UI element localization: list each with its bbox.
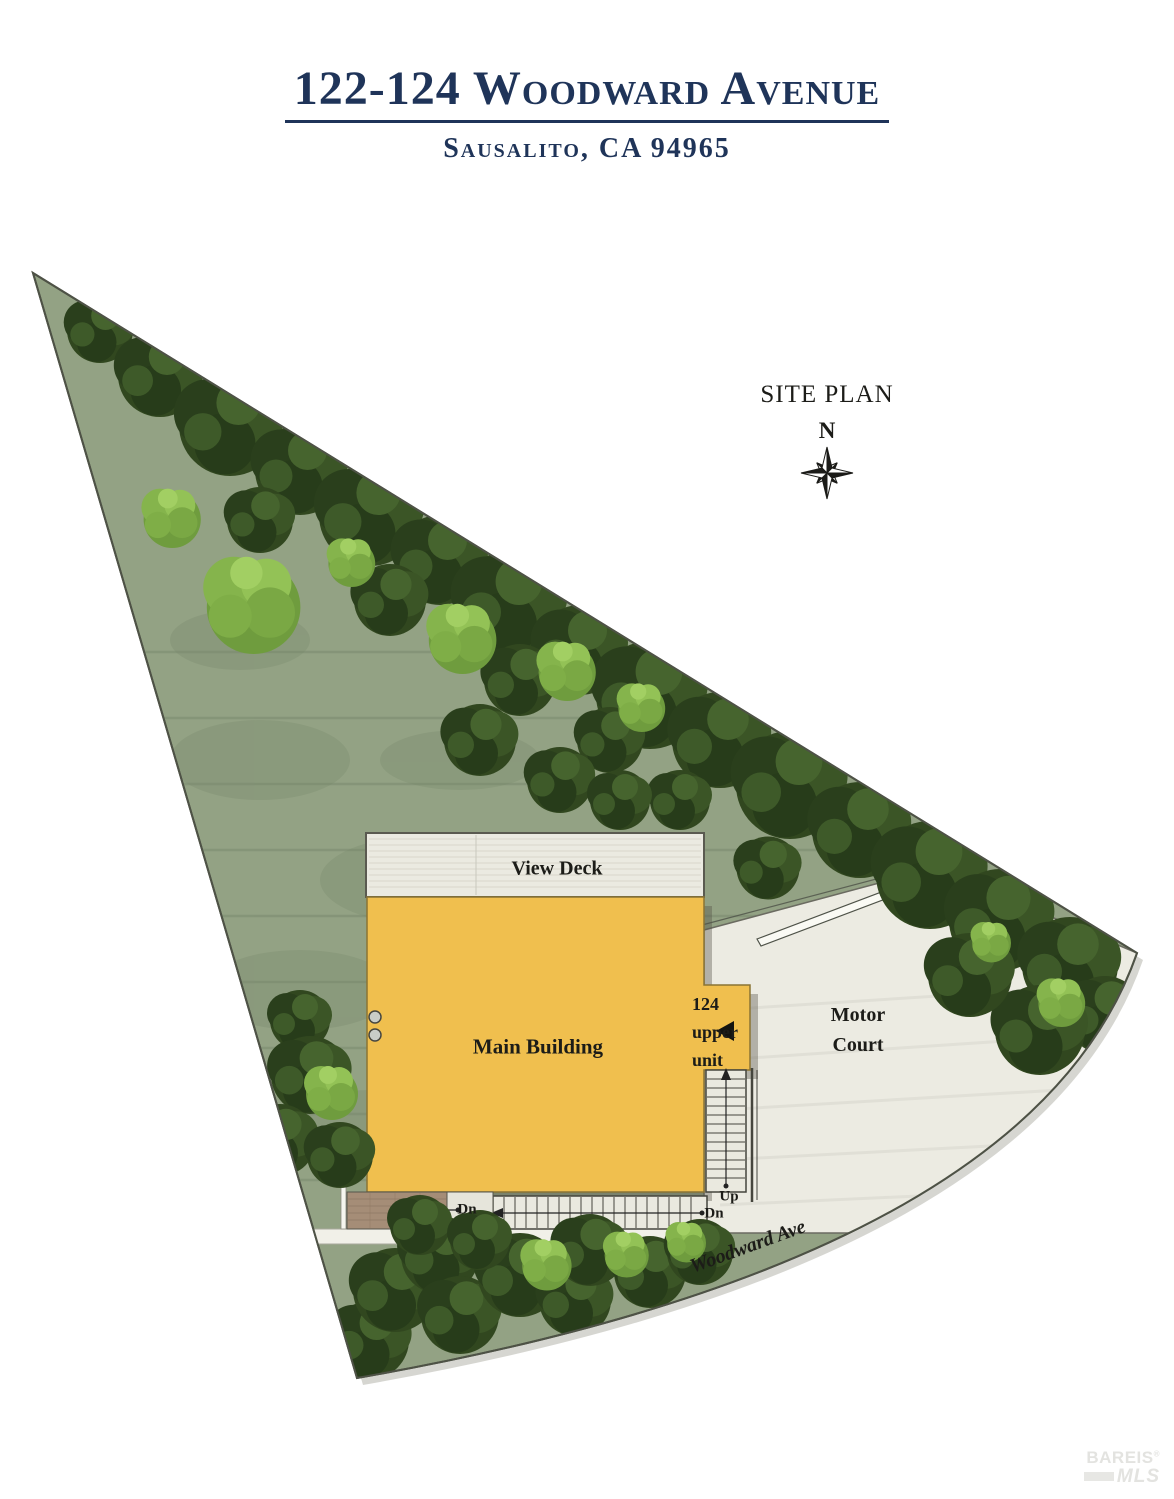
site-plan: SITE PLAN N View Deck Main Building 124 … bbox=[0, 0, 1174, 1499]
mls-watermark: BAREIS® MLS bbox=[1084, 1449, 1160, 1486]
building-column-dot bbox=[369, 1011, 381, 1023]
site-plan-drawing bbox=[0, 0, 1174, 1499]
building-column-dot bbox=[369, 1029, 381, 1041]
watermark-mls: MLS bbox=[1084, 1467, 1160, 1486]
watermark-bar bbox=[1084, 1472, 1114, 1481]
main-building-footprint bbox=[367, 897, 750, 1192]
compass-rose-icon bbox=[801, 447, 853, 499]
flyer-page: 122-124 Woodward Avenue Sausalito, CA 94… bbox=[0, 0, 1174, 1499]
view-deck-area bbox=[366, 833, 704, 897]
watermark-brand: BAREIS® bbox=[1084, 1449, 1160, 1466]
